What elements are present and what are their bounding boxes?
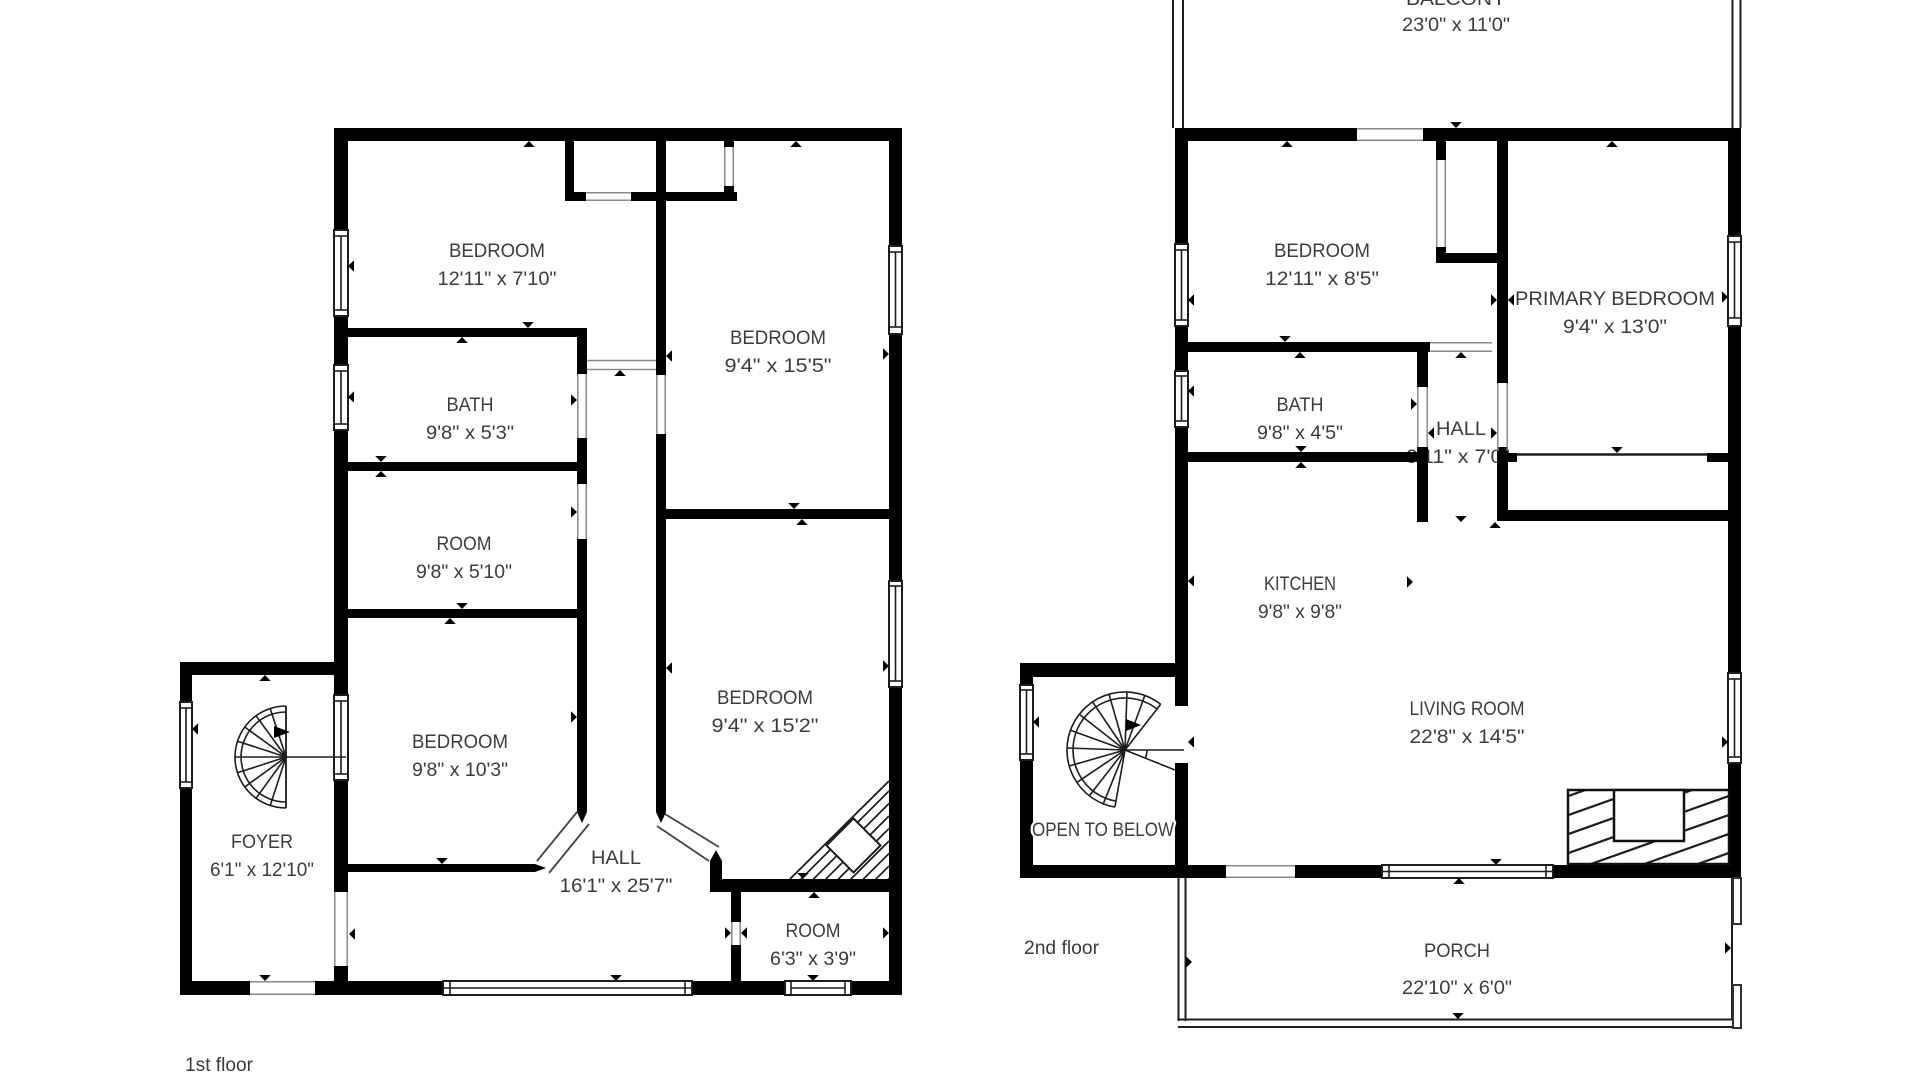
- svg-text:BEDROOM: BEDROOM: [1274, 241, 1370, 262]
- svg-text:BEDROOM: BEDROOM: [717, 688, 813, 709]
- svg-text:9'8" x 10'3": 9'8" x 10'3": [412, 760, 508, 781]
- svg-text:9'8" x 5'3": 9'8" x 5'3": [426, 423, 514, 444]
- svg-text:9'4" x 13'0": 9'4" x 13'0": [1563, 317, 1667, 338]
- svg-text:LIVING ROOM: LIVING ROOM: [1410, 699, 1525, 720]
- svg-text:FOYER: FOYER: [231, 832, 293, 853]
- svg-text:BATH: BATH: [1277, 395, 1324, 416]
- svg-text:23'0" x 11'0": 23'0" x 11'0": [1402, 15, 1510, 36]
- svg-text:ROOM: ROOM: [786, 921, 841, 942]
- svg-text:9'4" x 15'5": 9'4" x 15'5": [725, 356, 832, 377]
- svg-text:6'3" x 3'9": 6'3" x 3'9": [770, 949, 856, 970]
- svg-text:BEDROOM: BEDROOM: [730, 328, 826, 349]
- svg-text:6'1" x 12'10": 6'1" x 12'10": [210, 860, 314, 881]
- svg-text:1st floor: 1st floor: [185, 1055, 254, 1076]
- svg-text:2nd floor: 2nd floor: [1024, 938, 1100, 959]
- svg-text:HALL: HALL: [1436, 419, 1486, 440]
- svg-text:12'11" x 7'10": 12'11" x 7'10": [438, 269, 557, 290]
- svg-text:BEDROOM: BEDROOM: [412, 732, 508, 753]
- svg-text:PORCH: PORCH: [1424, 941, 1490, 962]
- svg-text:KITCHEN: KITCHEN: [1264, 574, 1336, 595]
- svg-text:9'4" x 15'2": 9'4" x 15'2": [712, 716, 819, 737]
- svg-text:ROOM: ROOM: [437, 534, 492, 555]
- svg-text:22'8" x 14'5": 22'8" x 14'5": [1410, 727, 1525, 748]
- svg-text:9'8" x 9'8": 9'8" x 9'8": [1258, 602, 1342, 623]
- svg-text:22'10" x 6'0": 22'10" x 6'0": [1402, 978, 1512, 999]
- svg-text:12'11" x 8'5": 12'11" x 8'5": [1265, 269, 1379, 290]
- svg-text:OPEN TO BELOW: OPEN TO BELOW: [1032, 820, 1174, 841]
- svg-text:16'1" x 25'7": 16'1" x 25'7": [560, 876, 673, 897]
- svg-text:BALCONY: BALCONY: [1406, 0, 1506, 10]
- svg-text:BEDROOM: BEDROOM: [449, 241, 545, 262]
- svg-text:BATH: BATH: [447, 395, 494, 416]
- svg-text:9'8" x 5'10": 9'8" x 5'10": [416, 562, 512, 583]
- svg-text:PRIMARY BEDROOM: PRIMARY BEDROOM: [1515, 289, 1715, 310]
- svg-text:9'8" x 4'5": 9'8" x 4'5": [1257, 423, 1343, 444]
- svg-text:HALL: HALL: [591, 848, 641, 869]
